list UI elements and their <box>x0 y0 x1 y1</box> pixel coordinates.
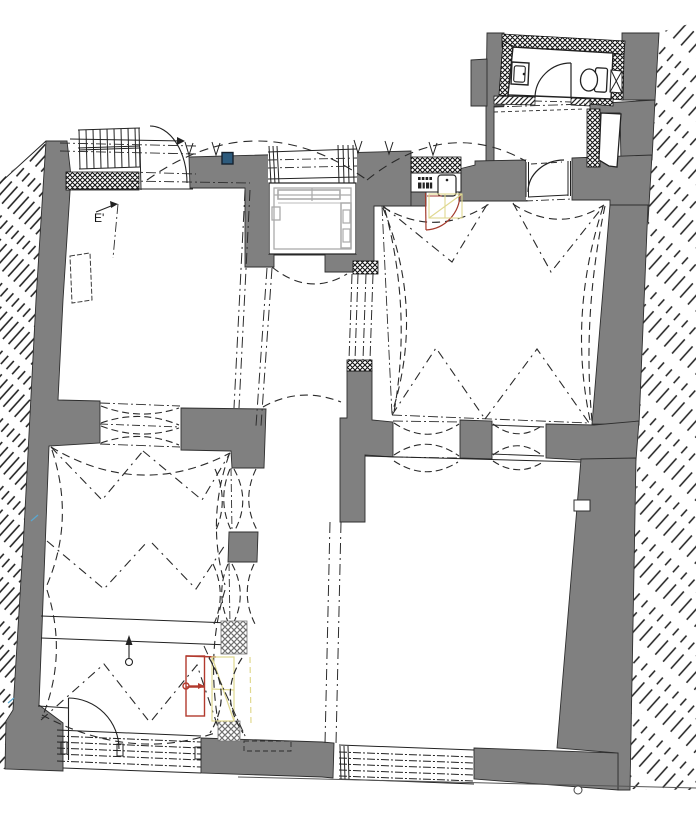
svg-text:E': E' <box>94 211 104 225</box>
